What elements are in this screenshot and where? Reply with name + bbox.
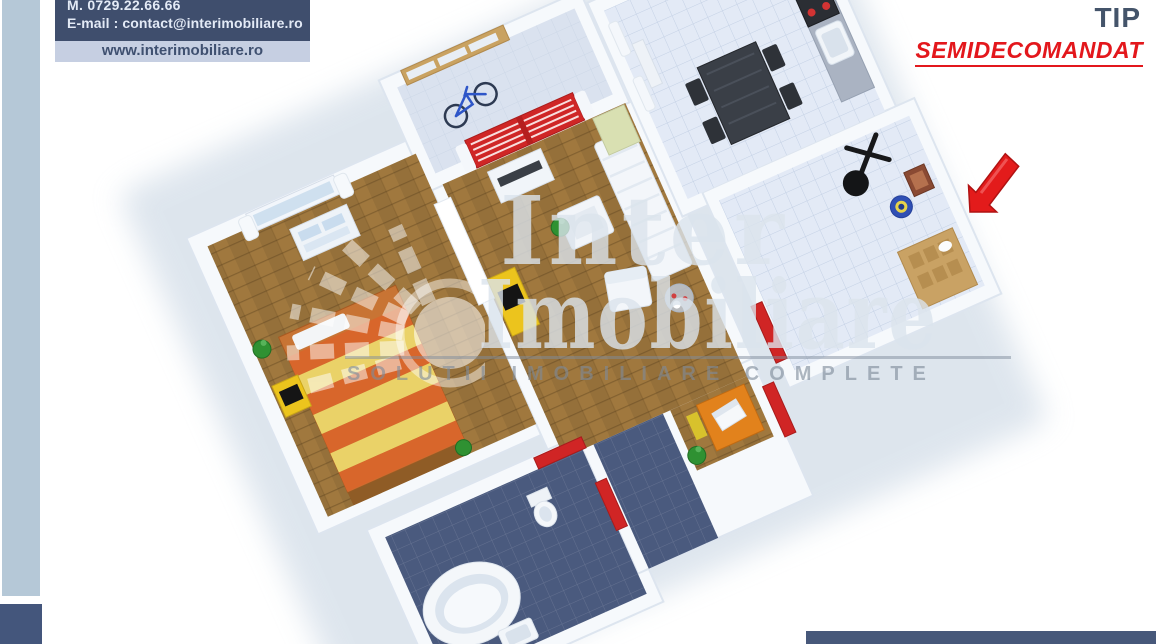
floorplan-svg	[0, 0, 1156, 644]
entrance-arrow-icon	[969, 154, 1019, 212]
armchair	[604, 266, 652, 313]
flyer-canvas: { "branding": { "phone": "M. 0729.22.66.…	[0, 0, 1156, 644]
